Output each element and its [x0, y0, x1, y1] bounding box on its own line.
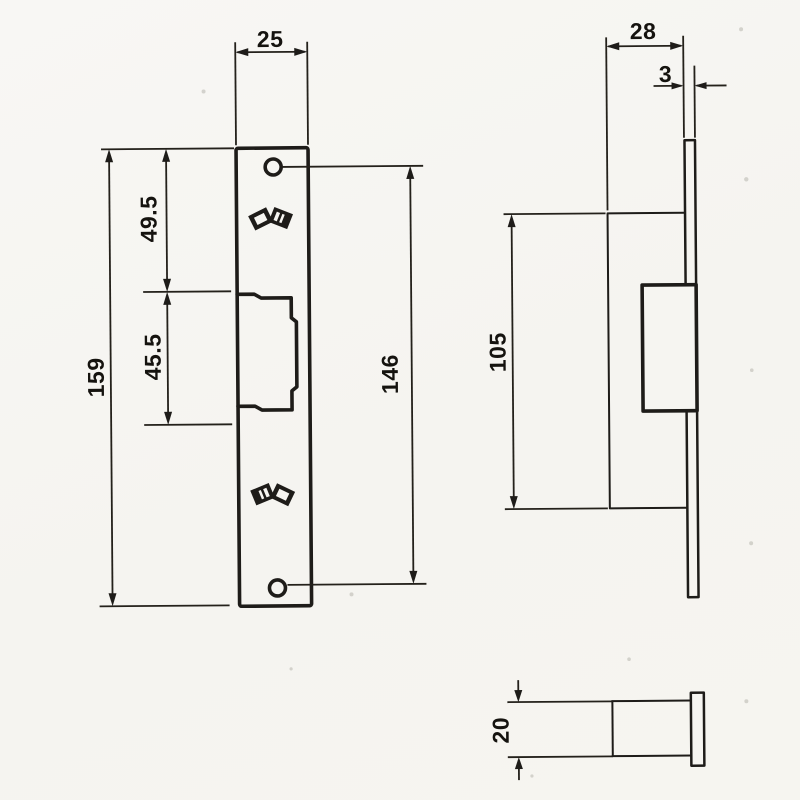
extension-line: [100, 605, 230, 606]
arrowhead-left-icon: [695, 82, 707, 89]
dimension-line: [512, 220, 514, 503]
dim-label-top-hole-offset: 49.5: [135, 195, 161, 242]
dimension-line: [410, 172, 413, 579]
dim-label-body-height: 105: [484, 332, 510, 372]
arrowhead-up-icon: [162, 149, 170, 162]
faceplate-section-outline: [691, 693, 705, 766]
arrowhead-down-icon: [164, 412, 172, 425]
arrowhead-left-icon: [606, 42, 619, 50]
dim-label-faceplate-thickness: 3: [659, 61, 673, 87]
dim-label-body-width: 20: [487, 717, 513, 744]
technical-drawing: 25 159 49.5 45.5: [0, 0, 800, 800]
dim-label-body-depth: 28: [630, 18, 657, 44]
body-side-edge: [612, 756, 692, 757]
maker-mark-top-icon: [248, 207, 293, 231]
arrowhead-up-icon: [163, 292, 171, 305]
dim-cutout-height: 45.5: [139, 291, 232, 425]
arrowhead-down-icon: [109, 593, 117, 606]
latch-cutout: [237, 294, 297, 410]
dim-hole-spacing: 146: [282, 166, 426, 585]
extension-line: [101, 148, 234, 149]
arrowhead-up-icon: [515, 757, 523, 769]
maker-mark-bottom-icon: [250, 483, 295, 507]
arrowhead-right-icon: [294, 48, 307, 56]
dim-label-hole-spacing: 146: [377, 354, 403, 394]
side-view: [607, 140, 699, 598]
extension-line: [508, 756, 613, 757]
keeper-box-outline: [642, 285, 697, 411]
dimension-line: [166, 154, 167, 287]
extension-line: [235, 42, 236, 145]
drawing-sheet: 25 159 49.5 45.5: [0, 0, 800, 800]
dimension-line: [109, 154, 113, 601]
dim-body-height: 105: [484, 213, 608, 509]
arrowhead-down-icon: [510, 496, 518, 509]
leader-line: [282, 166, 423, 167]
front-view: [236, 148, 312, 607]
dim-top-hole-offset: 49.5: [135, 148, 231, 292]
arrowhead-right-icon: [672, 82, 684, 89]
dim-label-plate-width: 25: [257, 26, 284, 52]
arrowhead-down-icon: [409, 571, 417, 584]
dim-body-width: 20: [487, 680, 523, 780]
extension-line: [505, 508, 608, 509]
dim-body-depth: 28: [606, 18, 685, 211]
dim-label-cutout-height: 45.5: [139, 333, 165, 380]
body-side-edge: [611, 701, 691, 702]
plan-view: [507, 693, 704, 768]
screw-hole-top: [265, 159, 281, 175]
screw-hole-bottom: [269, 580, 285, 596]
leader-line: [287, 584, 426, 585]
extension-line: [507, 701, 612, 702]
arrowhead-down-icon: [514, 690, 522, 702]
arrowhead-down-icon: [163, 279, 171, 292]
extension-line: [504, 213, 606, 214]
extension-line: [144, 424, 232, 425]
dimension-line: [167, 298, 168, 420]
arrowhead-up-icon: [105, 149, 113, 162]
arrowhead-right-icon: [670, 42, 683, 50]
extension-line: [694, 66, 695, 138]
arrowhead-left-icon: [235, 48, 248, 56]
dim-label-plate-height: 159: [83, 357, 109, 397]
extension-line: [606, 37, 607, 210]
arrowhead-up-icon: [406, 166, 414, 179]
dim-plate-width: 25: [235, 26, 308, 146]
extension-line: [683, 36, 684, 138]
extension-line: [307, 42, 308, 145]
arrowhead-up-icon: [508, 214, 516, 227]
extension-line: [143, 291, 231, 292]
dim-faceplate-thickness: 3: [653, 60, 727, 138]
